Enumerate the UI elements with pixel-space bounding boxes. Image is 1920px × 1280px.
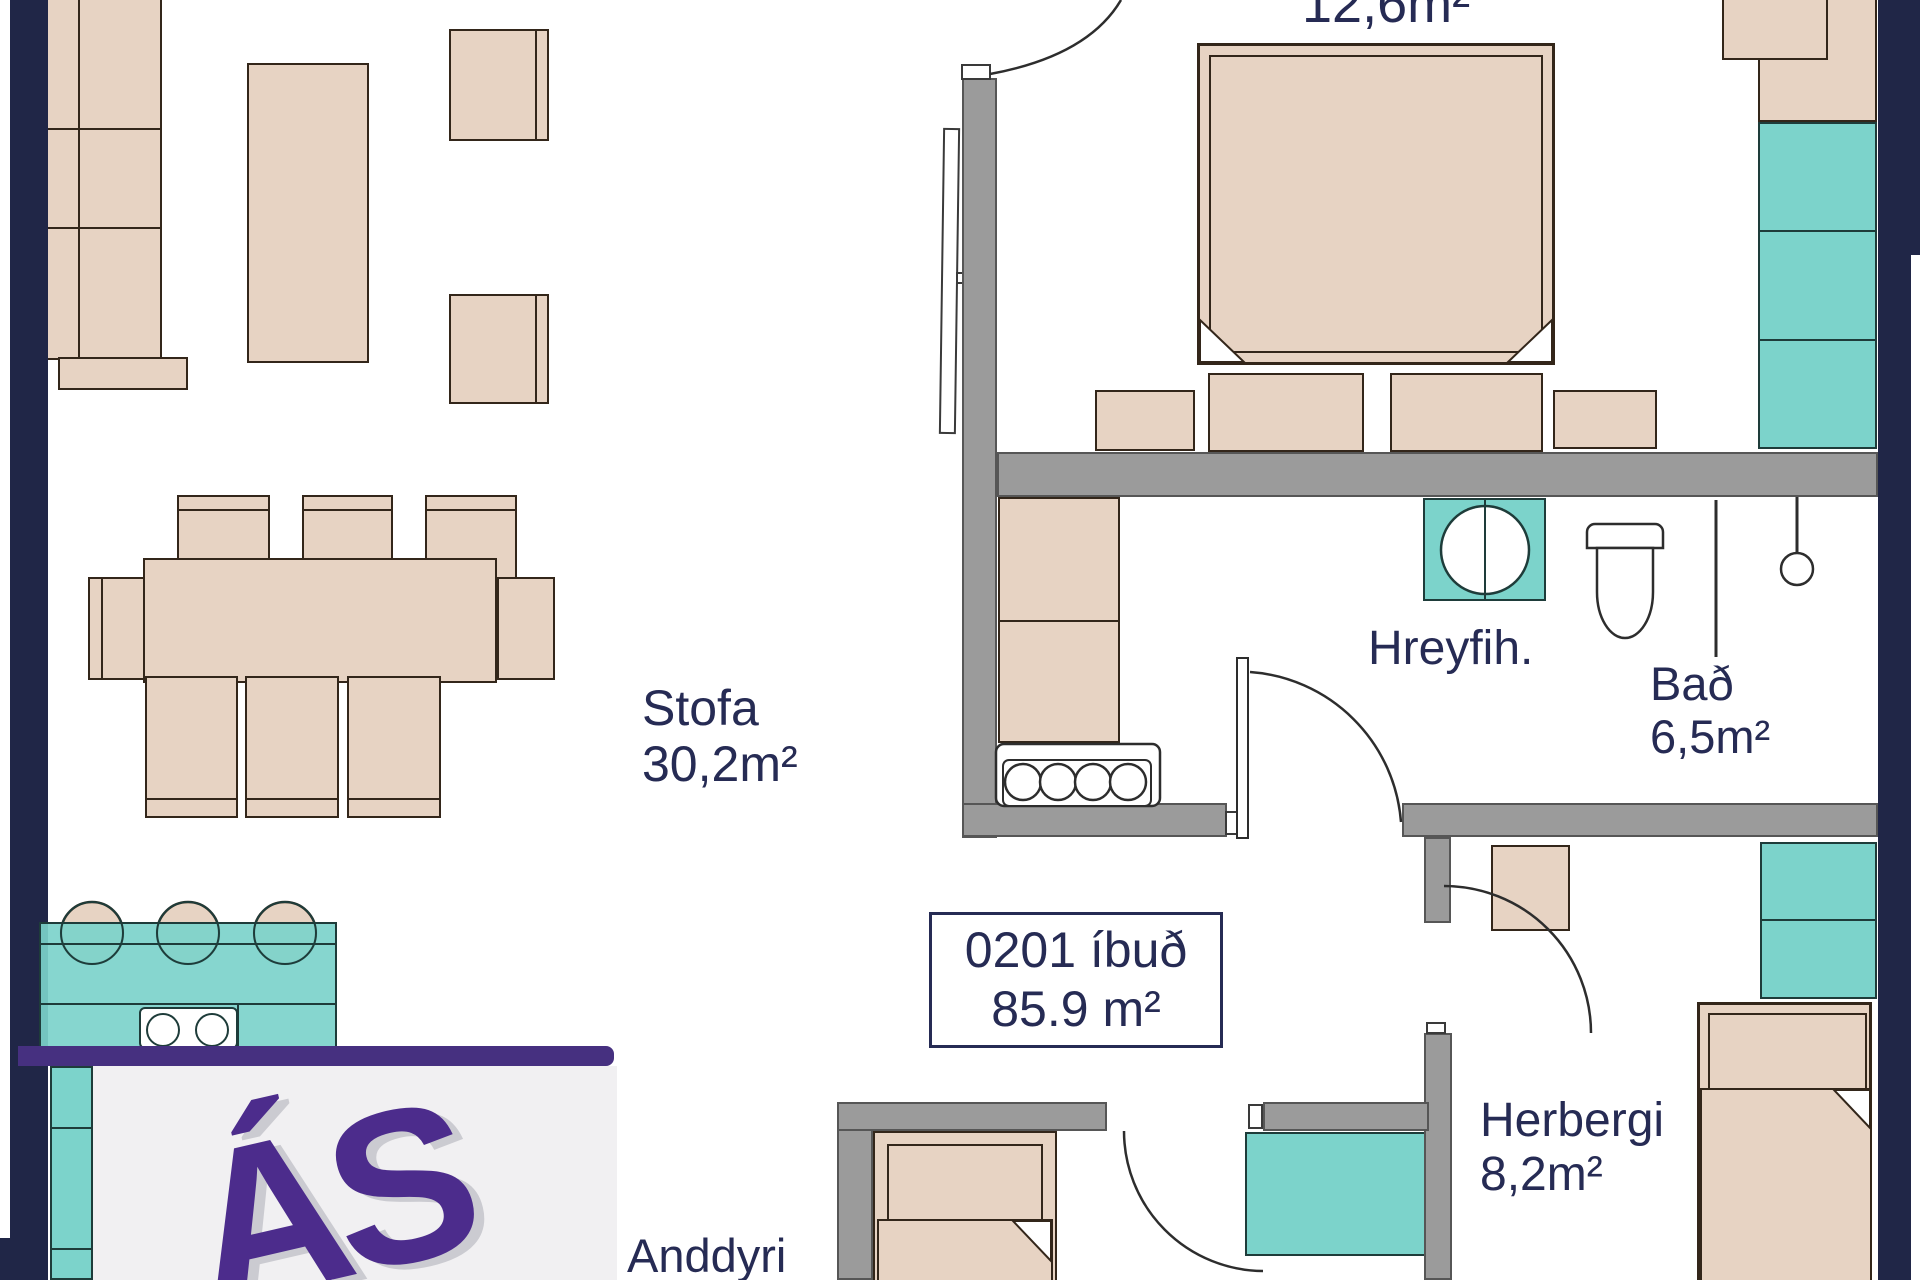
stove-frame — [1003, 760, 1151, 806]
exterior-wall-left — [10, 0, 48, 1280]
unit-info-box: 0201 íbuð 85.9 m² — [929, 912, 1223, 1048]
hreyfih-label: Hreyfih. — [1368, 622, 1533, 676]
wall-bedroom-left — [962, 78, 997, 838]
anddyri-label: Anddyri — [627, 1230, 786, 1280]
herbergi-name: Herbergi — [1480, 1094, 1664, 1147]
stove — [996, 744, 1160, 806]
floor-plan: 12,6m² Stofa 30,2m² Hreyfih. Bað 6,5m² H… — [0, 0, 1920, 1280]
door-stub — [961, 64, 991, 80]
door-stub — [1225, 811, 1238, 835]
chair-back-line — [147, 798, 236, 800]
toilet-tank-icon — [1587, 524, 1663, 548]
bar-stool-outline — [254, 902, 316, 964]
counter-divider — [1000, 620, 1118, 622]
dining-chair — [245, 676, 339, 818]
wall-anddyri-top-right — [1263, 1102, 1429, 1131]
armchair-armrest-line — [535, 31, 547, 139]
bed-bench — [1390, 373, 1543, 452]
wardrobe-shelf — [1758, 230, 1877, 341]
exterior-wall-corner — [1911, 0, 1920, 255]
as-logo: ÁS — [164, 1066, 488, 1280]
counter-divider — [50, 1248, 93, 1250]
bed-bench — [1095, 390, 1195, 451]
wall-herbergi-left — [1424, 1033, 1452, 1280]
wall-corridor-stub — [1424, 837, 1451, 923]
bed-inner-line — [1209, 55, 1543, 353]
door-arc-hreyfih — [1250, 672, 1401, 822]
dining-table — [143, 558, 497, 683]
logo-bar — [18, 1046, 614, 1066]
dining-chair — [145, 676, 238, 818]
herbergi-label: Herbergi 8,2m² — [1480, 1094, 1664, 1202]
wall-anddyri-top-left — [837, 1102, 1107, 1131]
sofa-seat-cushion — [78, 128, 162, 229]
door-leaf — [1237, 658, 1248, 838]
door-arc-anddyri — [1124, 1131, 1263, 1271]
wall-kitchen-bottom — [962, 803, 1227, 837]
chair-back-line — [304, 509, 391, 511]
toilet-bowl-icon — [1597, 548, 1653, 638]
bar-stool — [157, 902, 219, 964]
dining-chair — [347, 676, 441, 818]
door-arc-bedroom — [990, 0, 1121, 74]
armchair — [449, 29, 549, 141]
exterior-wall-corner — [0, 1238, 48, 1280]
stove-burner — [1005, 764, 1041, 800]
unit-number: 0201 íbuð — [965, 921, 1187, 980]
wall-bedroom-bottom — [997, 452, 1878, 497]
bad-label: Bað 6,5m² — [1650, 658, 1770, 763]
sofa-seat-cushion — [78, 227, 162, 360]
bed-duvet — [1700, 1088, 1872, 1280]
logo-box: ÁS — [93, 1066, 617, 1280]
chair-back-line — [101, 579, 103, 678]
herbergi-dresser — [1491, 845, 1570, 931]
stofa-area: 30,2m² — [642, 736, 798, 792]
sink-basin — [147, 1014, 179, 1046]
bar-stool-outline — [157, 902, 219, 964]
bad-area: 6,5m² — [1650, 710, 1770, 763]
herbergi-wardrobe — [1760, 842, 1877, 999]
bar-stool — [61, 902, 123, 964]
herbergi-area: 8,2m² — [1480, 1148, 1603, 1201]
sofa-armrest — [58, 357, 188, 390]
stove-burner — [1075, 764, 1111, 800]
wall-bath-bottom — [1402, 803, 1878, 837]
bed-bench — [1553, 390, 1657, 449]
chair-back-line — [247, 798, 337, 800]
kitchen-island — [40, 923, 336, 1048]
door-stub — [1426, 1022, 1446, 1034]
chair-back-line — [179, 509, 268, 511]
herbergi-desk — [1245, 1132, 1426, 1256]
chair-back-line — [349, 798, 439, 800]
exterior-wall-right — [1878, 0, 1911, 1280]
wardrobe-shelf — [1758, 339, 1877, 449]
stofa-label: Stofa 30,2m² — [642, 680, 798, 792]
unit-area: 85.9 m² — [991, 980, 1161, 1039]
armchair-armrest-line — [535, 296, 547, 402]
door-stub — [1248, 1104, 1263, 1129]
sink-basin — [196, 1014, 228, 1046]
bar-stool-outline — [61, 902, 123, 964]
dining-chair — [88, 577, 145, 680]
kitchen-sink — [140, 1008, 237, 1048]
bed-pillow — [887, 1144, 1043, 1230]
armchair — [449, 294, 549, 404]
shower-head-icon — [1781, 553, 1813, 585]
stove-burner — [1110, 764, 1146, 800]
dining-chair — [497, 577, 555, 680]
wardrobe-shelf — [1758, 122, 1877, 232]
stove-burner — [1040, 764, 1076, 800]
sofa-seat-cushion — [78, 0, 162, 130]
bed-bench — [1208, 373, 1364, 452]
stofa-name: Stofa — [642, 680, 759, 736]
bathroom-sink-cabinet — [1423, 498, 1546, 601]
counter-divider — [50, 1127, 93, 1129]
chair-back-line — [427, 509, 515, 511]
bad-name: Bað — [1650, 657, 1734, 710]
bed-pillow — [1708, 1013, 1867, 1090]
dresser — [1722, 0, 1828, 60]
bedroom-area-label: 12,6m² — [1302, 0, 1470, 34]
bar-stool — [254, 902, 316, 964]
bed-duvet — [877, 1219, 1053, 1280]
coffee-table — [247, 63, 369, 363]
